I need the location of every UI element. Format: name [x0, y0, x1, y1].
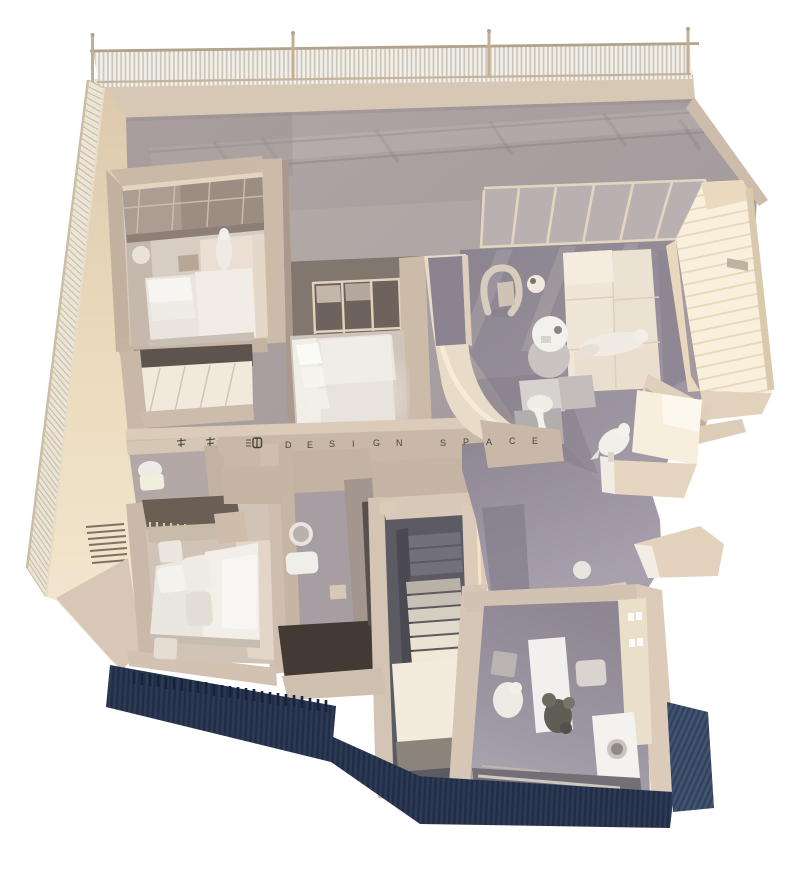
svg-text:C: C [509, 436, 516, 446]
svg-text:E: E [532, 436, 538, 446]
svg-text:G: G [373, 438, 380, 448]
svg-text:A: A [486, 437, 492, 447]
svg-text:E: E [307, 440, 313, 450]
svg-text:D: D [285, 440, 292, 450]
svg-text:P: P [463, 437, 469, 447]
svg-text:I: I [352, 439, 355, 449]
svg-text:S: S [440, 438, 446, 448]
svg-text:S: S [329, 439, 335, 449]
svg-text:N: N [396, 438, 403, 448]
